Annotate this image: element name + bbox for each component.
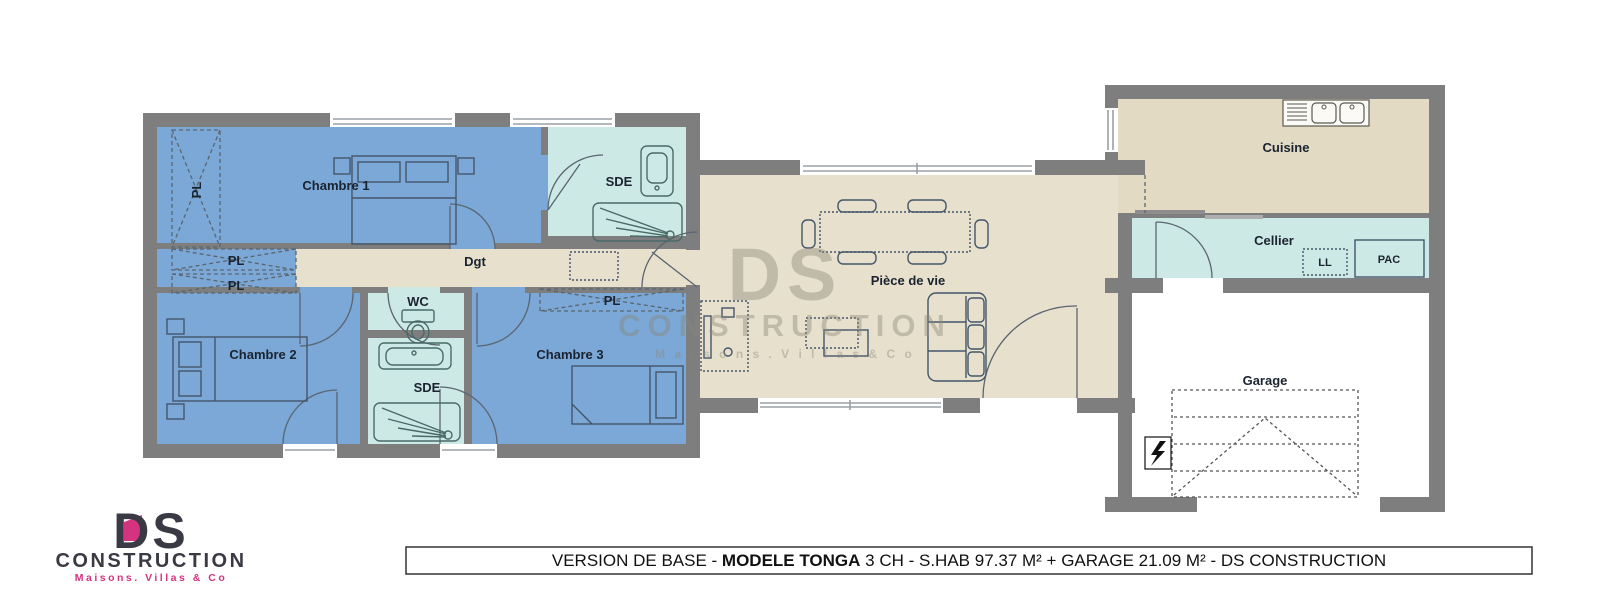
- room-label-sde1: SDE: [606, 174, 633, 189]
- closet-label-pl2: PL: [228, 278, 245, 293]
- floor-plan: DS CONSTRUCTION M a i s o n s . V i l l …: [0, 0, 1600, 600]
- appliance-label-ll: LL: [1318, 257, 1332, 269]
- title-bar-text: VERSION DE BASE - MODELE TONGA 3 CH - S.…: [552, 551, 1386, 570]
- logo-tagline: Maisons. Villas & Co: [75, 572, 228, 584]
- company-logo: DS CONSTRUCTION Maisons. Villas & Co: [55, 503, 246, 584]
- hallway-dgt-floor: [296, 249, 686, 287]
- watermark-construction: CONSTRUCTION: [618, 308, 952, 343]
- room-label-chambre1: Chambre 1: [302, 178, 369, 193]
- watermark-ds: DS: [728, 233, 843, 316]
- room-label-piece-de-vie: Pièce de vie: [871, 273, 945, 288]
- garage-floor: [1132, 293, 1429, 497]
- closet-label-pl1: PL: [228, 253, 245, 268]
- kitchen-sink-icon: [1283, 100, 1369, 126]
- cuisine-floor: [1118, 99, 1429, 213]
- room-label-cellier: Cellier: [1254, 233, 1294, 248]
- appliance-label-pac: PAC: [1378, 254, 1400, 266]
- watermark-tagline: M a i s o n s . V i l l a s & C o: [655, 347, 915, 361]
- room-label-garage: Garage: [1243, 373, 1288, 388]
- logo-construction: CONSTRUCTION: [55, 550, 246, 572]
- room-label-dgt: Dgt: [464, 254, 486, 269]
- room-label-chambre2: Chambre 2: [229, 347, 296, 362]
- room-label-wc: WC: [407, 294, 429, 309]
- room-label-sde2: SDE: [414, 380, 441, 395]
- room-label-chambre3: Chambre 3: [536, 347, 603, 362]
- room-label-cuisine: Cuisine: [1263, 140, 1310, 155]
- title-bar: VERSION DE BASE - MODELE TONGA 3 CH - S.…: [406, 547, 1532, 574]
- closet-label-pl-vertical: PL: [189, 182, 204, 199]
- floor-plan-page: DS CONSTRUCTION M a i s o n s . V i l l …: [0, 0, 1600, 600]
- cellier-floor: [1132, 218, 1429, 278]
- electrical-panel-icon: [1145, 437, 1171, 469]
- slider-window-leaf: [1205, 215, 1263, 219]
- closet-label-pl3: PL: [604, 293, 621, 308]
